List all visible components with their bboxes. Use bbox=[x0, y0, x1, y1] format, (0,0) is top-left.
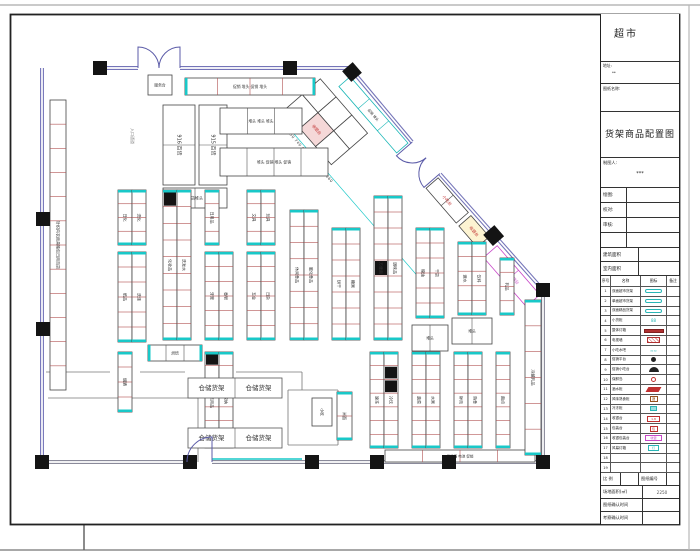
sign-row: 审核: bbox=[601, 218, 679, 233]
legend-symbol-pillc bbox=[645, 299, 662, 303]
shelf-label: 日用品 bbox=[210, 212, 215, 224]
footer-value bbox=[643, 499, 679, 511]
column bbox=[536, 283, 550, 297]
floor-plan-svg: 促销 堆头小吃台收银台收银包装台收银台650 640 650 740 650 3… bbox=[0, 0, 700, 555]
legend-cell: 整体灯箱 bbox=[611, 326, 641, 335]
annotation-text: 入口通道 bbox=[130, 128, 136, 144]
legend-row: 11酒水柜 bbox=[601, 385, 679, 395]
area-row-label: 室内面积 bbox=[601, 262, 639, 275]
legend-cell bbox=[641, 375, 667, 384]
legend-cell: 酒 bbox=[641, 395, 667, 404]
shelf-label: 堆头 促销 堆头 促销 bbox=[257, 160, 291, 165]
area-row: 室内面积 bbox=[601, 262, 679, 276]
footer-value bbox=[643, 512, 679, 524]
sign-row bbox=[601, 233, 679, 248]
sign-rows: 绘图:校对:审核: bbox=[601, 188, 679, 248]
legend-cell bbox=[667, 395, 680, 404]
shelf-label: 促销 堆头 促销 堆头 bbox=[233, 84, 267, 89]
legend-cell: 双面精品货架 bbox=[611, 307, 641, 316]
legend-cell: 2 bbox=[601, 297, 611, 306]
legend-cell: 8 bbox=[601, 356, 611, 365]
legend-cell: 包装台 bbox=[611, 424, 641, 433]
legend-cell: 19 bbox=[601, 463, 611, 472]
legend-cell bbox=[667, 356, 680, 365]
legend-row: 5整体灯箱 bbox=[601, 326, 679, 336]
legend-row: 18 bbox=[601, 454, 679, 464]
legend-symbol-tealt: 88 bbox=[651, 318, 656, 323]
legend-cell: 7 bbox=[601, 346, 611, 355]
legend-cell bbox=[641, 297, 667, 306]
legend-cell bbox=[667, 297, 680, 306]
legend-cell: 88 bbox=[641, 316, 667, 325]
legend-symbol-domeb bbox=[649, 367, 659, 372]
title-block-footer: 比 例图纸编号场地面积(㎡)2250图纸确认时间考察确认时间 bbox=[601, 473, 679, 525]
legend-symbol-hatchr bbox=[647, 337, 660, 343]
legend-cell: 双面超市货架 bbox=[611, 287, 641, 296]
shelf-label: 牙膏 bbox=[210, 292, 216, 300]
shelf-label: 冷饮 bbox=[389, 396, 395, 404]
legend-symbol-boxbr: 酒 bbox=[650, 396, 658, 402]
shelf-label: 冷藏乳品 bbox=[531, 370, 537, 386]
legend-row: 9促销小吃台 bbox=[601, 365, 679, 375]
shelf-label: 酒水 bbox=[463, 275, 469, 283]
legend-row: 7小吃水吧≈≈ bbox=[601, 346, 679, 356]
legend-cell bbox=[611, 463, 641, 472]
legend-cell bbox=[667, 287, 680, 296]
shelf-label: 仓储货架 bbox=[199, 383, 226, 392]
footer-label: 考察确认时间 bbox=[601, 512, 643, 524]
footer-value: 2250 bbox=[643, 486, 679, 498]
shelf-label: 粮油 bbox=[421, 269, 427, 277]
legend-cell: 3 bbox=[601, 307, 611, 316]
legend-cell bbox=[667, 375, 680, 384]
legend-cell bbox=[641, 454, 667, 463]
legend-cell: 6 bbox=[601, 336, 611, 345]
legend-row: 13冷冻柜 bbox=[601, 405, 679, 415]
sign-row-label: 校对: bbox=[601, 203, 627, 217]
column bbox=[370, 455, 384, 469]
drawing-sheet: 促销 堆头小吃台收银台收银包装台收银台650 640 650 740 650 3… bbox=[0, 0, 700, 555]
legend-symbol-pillc bbox=[645, 309, 662, 313]
sign-row-label: 审核: bbox=[601, 218, 627, 232]
sign-row: 校对: bbox=[601, 203, 679, 218]
shelf-label: 休闲食品 bbox=[295, 267, 301, 283]
legend-cell: 促销平台 bbox=[611, 356, 641, 365]
shelf-label: 仓储货架 bbox=[246, 383, 273, 392]
shelf-label: 日化 bbox=[123, 214, 129, 222]
door-arc bbox=[159, 47, 180, 68]
legend-row: 17风幕灯箱灯 bbox=[601, 444, 679, 454]
legend-cell bbox=[667, 385, 680, 394]
area-row: 建筑面积 bbox=[601, 248, 679, 262]
legend-symbol-pillc bbox=[645, 289, 662, 293]
legend-cell: 5 bbox=[601, 326, 611, 335]
legend-symbol-boxm: 收银 bbox=[645, 435, 662, 441]
shelf-label: 玩具 bbox=[266, 214, 272, 222]
address-cell: 地址: ** bbox=[601, 62, 679, 84]
footer-confirm-survey-row: 考察确认时间 bbox=[601, 512, 679, 525]
legend-cell: 13 bbox=[601, 405, 611, 414]
legend-cell bbox=[667, 365, 680, 374]
column bbox=[442, 455, 456, 469]
shelf-label: 干货 bbox=[435, 269, 441, 277]
shelf-label: 化妆品 bbox=[168, 259, 174, 271]
drafter-cell: 制图人: *** bbox=[601, 158, 679, 188]
column-diamond bbox=[342, 62, 362, 82]
legend-cell: 12 bbox=[601, 395, 611, 404]
shelf-label: 方便面 bbox=[379, 262, 385, 274]
area-rows: 建筑面积室内面积 bbox=[601, 248, 679, 276]
drawing-name-label: 图纸名称: bbox=[601, 84, 679, 112]
shelf-label: 米面 bbox=[342, 412, 348, 420]
legend-cell: 酒水柜 bbox=[611, 385, 641, 394]
legend-cell bbox=[667, 346, 680, 355]
legend-row: 2单面超市货架 bbox=[601, 297, 679, 307]
legend-cell bbox=[667, 454, 680, 463]
door-arc bbox=[138, 47, 159, 68]
shelf-label: 蔬菜 bbox=[417, 396, 423, 404]
legend-cell: 收银台 bbox=[611, 414, 641, 423]
shelf-label: 水果 bbox=[431, 396, 437, 404]
legend-cell bbox=[641, 326, 667, 335]
shelf-label: 饮料 bbox=[477, 275, 483, 283]
footer-area-row: 场地面积(㎡)2250 bbox=[601, 486, 679, 499]
legend-cell bbox=[641, 287, 667, 296]
legend-cell: 17 bbox=[601, 444, 611, 453]
legend-cell bbox=[641, 463, 667, 472]
legend-cell: 15 bbox=[601, 424, 611, 433]
shelf-label: 鲜肉 bbox=[459, 396, 465, 404]
legend-table: 1双面超市货架2单面超市货架3双面精品货架4小货柜885整体灯箱6电视墙7小吃水… bbox=[601, 287, 679, 473]
legend-cell: 小货柜 bbox=[611, 316, 641, 325]
legend-cell: ≈≈ bbox=[641, 346, 667, 355]
shelf-label: 烟酒 bbox=[123, 378, 129, 386]
sign-row: 绘图: bbox=[601, 188, 679, 203]
legend-cell bbox=[667, 307, 680, 316]
legend-cell bbox=[667, 336, 680, 345]
legend-cell: 14 bbox=[601, 414, 611, 423]
legend-cell: 单面超市货架 bbox=[611, 297, 641, 306]
footer-scale-row: 比 例图纸编号 bbox=[601, 473, 679, 486]
legend-symbol-ringr bbox=[651, 377, 656, 382]
shelf-label: 香皂 bbox=[224, 292, 230, 300]
shelf-label: 饼干 bbox=[337, 280, 343, 288]
legend-symbol-boxcf bbox=[650, 406, 657, 411]
sign-row-label bbox=[601, 233, 627, 247]
shelf-label: 日杂 bbox=[266, 292, 272, 300]
legend-cell: 1.8 bbox=[641, 414, 667, 423]
legend-cell bbox=[641, 405, 667, 414]
legend-symbol-boxr: 1.8 bbox=[647, 416, 660, 422]
shelf-label: 熟食 bbox=[473, 396, 479, 404]
legend-cell: 冷冻柜 bbox=[611, 405, 641, 414]
legend-cell: 18 bbox=[601, 454, 611, 463]
shelf-label: 烘焙 bbox=[171, 351, 179, 356]
legend-row: 14收银台1.8 bbox=[601, 414, 679, 424]
legend-cell: 16 bbox=[601, 434, 611, 443]
address-value: ** bbox=[612, 70, 677, 75]
legend-cell bbox=[667, 463, 680, 472]
legend-cell bbox=[641, 365, 667, 374]
legend-row: 12风味熟食柜酒 bbox=[601, 395, 679, 405]
column bbox=[305, 455, 319, 469]
legend-cell: 10 bbox=[601, 375, 611, 384]
column bbox=[536, 455, 550, 469]
legend-row: 15包装台包 bbox=[601, 424, 679, 434]
legend-row: 10保鲜岛 bbox=[601, 375, 679, 385]
legend-cell: 收银 bbox=[641, 434, 667, 443]
column bbox=[36, 322, 50, 336]
legend-cell bbox=[667, 414, 680, 423]
legend-header-cell: 图标 bbox=[641, 276, 667, 286]
shelf-label: 文具 bbox=[252, 214, 258, 222]
shelf-label: 仓储货架 bbox=[246, 433, 273, 442]
shelf-label: 调味品 bbox=[393, 262, 399, 274]
legend-cell bbox=[667, 424, 680, 433]
shelf-label: 膨化食品 bbox=[309, 267, 315, 283]
legend-row: 1双面超市货架 bbox=[601, 287, 679, 297]
legend-header-cell: 备注 bbox=[667, 276, 680, 286]
shelf-label: 乳品 bbox=[505, 283, 511, 291]
legend-row: 16收银包装台收银 bbox=[601, 434, 679, 444]
shelf-label: 915 百货 bbox=[210, 134, 217, 155]
drawing-title: 货架商品配置图 bbox=[601, 112, 679, 158]
shelf-label: 糖果 bbox=[351, 280, 357, 288]
legend-symbol-barr bbox=[644, 329, 664, 333]
sign-row-label: 绘图: bbox=[601, 188, 627, 202]
title-block: 超市 地址: ** 图纸名称: 货架商品配置图 制图人: *** 绘图:校对:审… bbox=[600, 14, 679, 525]
legend-cell: 收银包装台 bbox=[611, 434, 641, 443]
legend-header: 序号名称图标备注 bbox=[601, 276, 679, 287]
footer-cell: 图纸编号 bbox=[639, 473, 667, 485]
shelf-label: 面点 bbox=[501, 396, 507, 404]
column bbox=[283, 61, 297, 75]
shelf-label: 速冻 bbox=[375, 396, 381, 404]
shelf-label: 小吃 bbox=[320, 408, 325, 416]
drafter-value: *** bbox=[603, 171, 677, 177]
legend-cell bbox=[667, 444, 680, 453]
footer-confirm-drawing-row: 图纸确认时间 bbox=[601, 499, 679, 512]
shelf-label: 916 百货 bbox=[176, 134, 183, 155]
legend-cell bbox=[667, 316, 680, 325]
legend-cell bbox=[641, 356, 667, 365]
column bbox=[35, 455, 49, 469]
address-label: 地址: bbox=[603, 63, 677, 69]
legend-symbol-tealt: ≈≈ bbox=[650, 348, 657, 353]
footer-cell bbox=[621, 473, 639, 485]
legend-cell: 风幕灯箱 bbox=[611, 444, 641, 453]
shelf-label: 服务台 bbox=[154, 83, 166, 88]
legend-row: 4小货柜88 bbox=[601, 316, 679, 326]
legend-header-cell: 序号 bbox=[601, 276, 611, 286]
shelf-label: 针织内衣雨具箱包日用百货 bbox=[56, 221, 62, 269]
legend-cell bbox=[641, 336, 667, 345]
shelf-label: 洗化 bbox=[137, 214, 143, 222]
legend-cell bbox=[667, 405, 680, 414]
legend-cell: 11 bbox=[601, 385, 611, 394]
shelf-label: 堆头 堆头 堆头 bbox=[248, 119, 273, 124]
column bbox=[93, 61, 107, 75]
legend-cell: 小吃水吧 bbox=[611, 346, 641, 355]
footer-label: 场地面积(㎡) bbox=[601, 486, 643, 498]
legend-cell bbox=[611, 454, 641, 463]
legend-symbol-circb bbox=[651, 357, 656, 362]
legend-cell: 4 bbox=[601, 316, 611, 325]
legend-cell: 保鲜岛 bbox=[611, 375, 641, 384]
area-row-label: 建筑面积 bbox=[601, 248, 639, 261]
legend-cell bbox=[641, 307, 667, 316]
legend-cell: 9 bbox=[601, 365, 611, 374]
column bbox=[183, 455, 197, 469]
footer-label: 图纸确认时间 bbox=[601, 499, 643, 511]
legend-cell: 1 bbox=[601, 287, 611, 296]
legend-cell: 促销小吃台 bbox=[611, 365, 641, 374]
legend-cell bbox=[667, 326, 680, 335]
legend-symbol-boxc: 灯 bbox=[648, 445, 659, 451]
legend-row: 19 bbox=[601, 463, 679, 473]
legend-row: 3双面精品货架 bbox=[601, 307, 679, 317]
shelf-label: 堆头 bbox=[468, 329, 476, 334]
shelf-label: 五金 bbox=[252, 292, 258, 300]
legend-cell: 灯 bbox=[641, 444, 667, 453]
footer-cell bbox=[667, 473, 680, 485]
shelf-label: 洗发水 bbox=[182, 259, 188, 271]
legend-cell: 包 bbox=[641, 424, 667, 433]
shelf-label: 堆头 bbox=[426, 336, 434, 341]
legend-cell bbox=[667, 434, 680, 443]
footer-cell: 比 例 bbox=[601, 473, 621, 485]
legend-header-cell: 名称 bbox=[611, 276, 641, 286]
column bbox=[36, 212, 50, 226]
legend-row: 8促销平台 bbox=[601, 356, 679, 366]
project-title: 超市 bbox=[601, 14, 679, 62]
legend-cell: 电视墙 bbox=[611, 336, 641, 345]
legend-symbol-parar bbox=[646, 387, 662, 392]
drafter-label: 制图人: bbox=[603, 160, 677, 166]
legend-cell bbox=[641, 385, 667, 394]
legend-cell: 风味熟食柜 bbox=[611, 395, 641, 404]
legend-symbol-boxr2: 包 bbox=[650, 426, 658, 432]
shelf-label: 纸品 bbox=[123, 293, 129, 301]
legend-row: 6电视墙 bbox=[601, 336, 679, 346]
shelf-label: 洗涤 bbox=[137, 293, 143, 301]
